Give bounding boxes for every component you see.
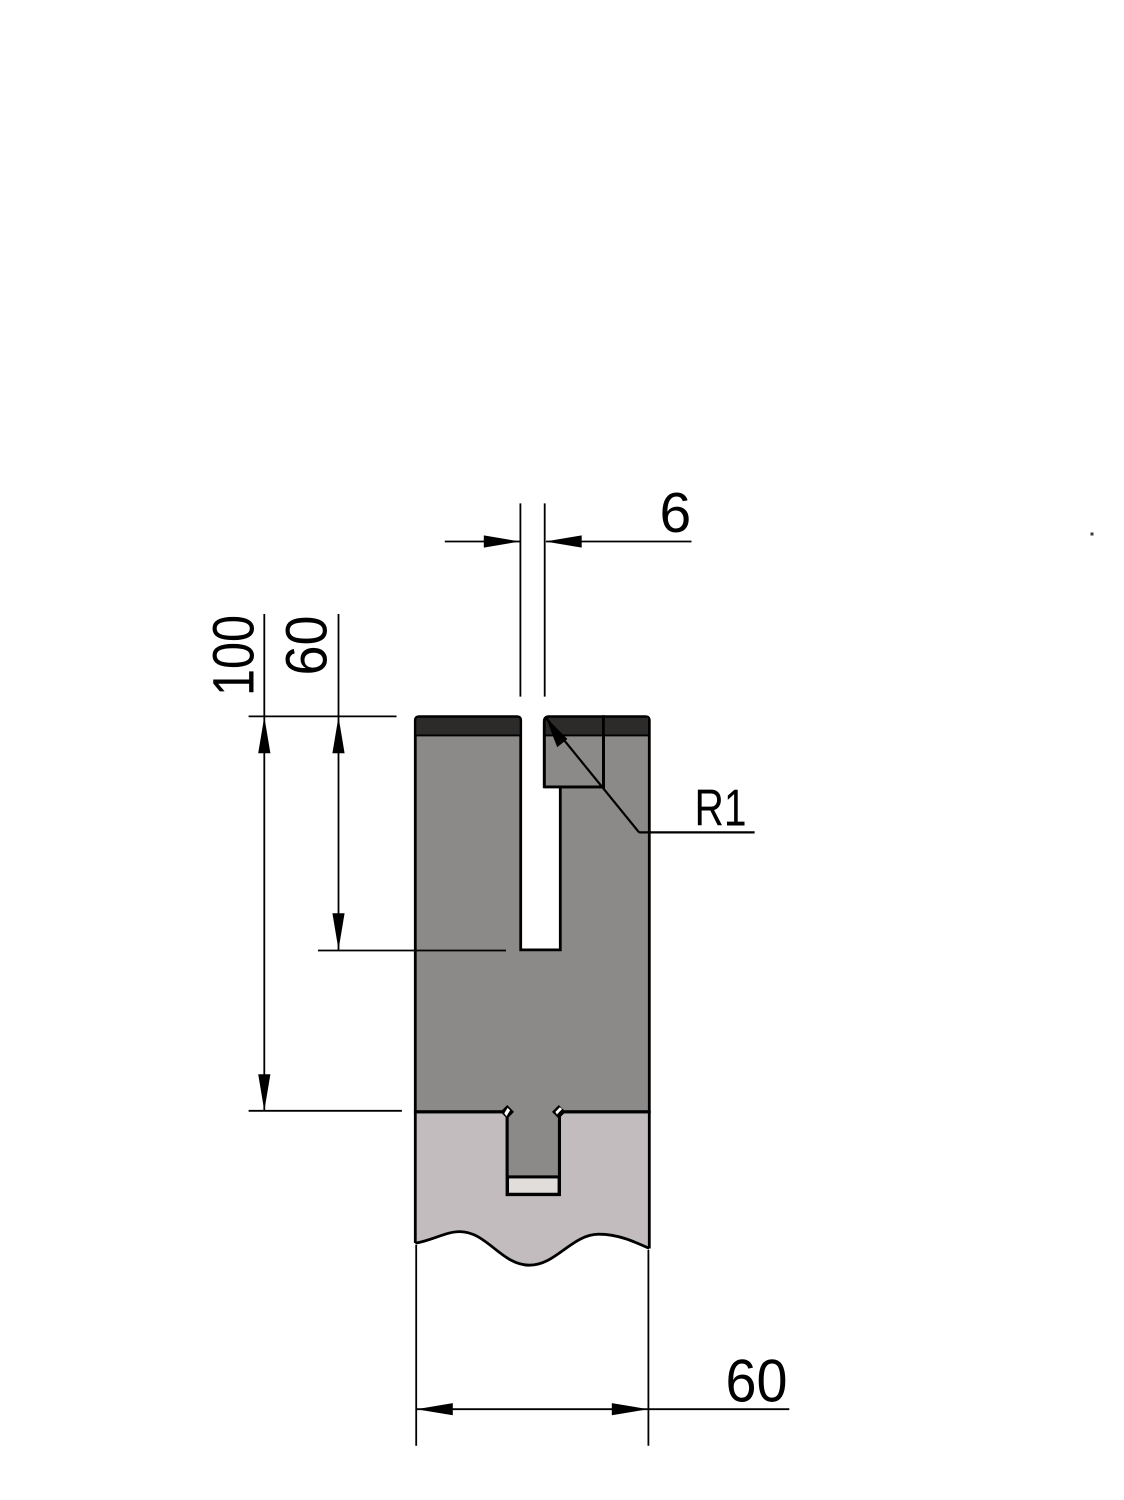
svg-text:60: 60 <box>726 1348 788 1415</box>
svg-text:60: 60 <box>275 616 340 676</box>
svg-text:100: 100 <box>202 615 267 696</box>
svg-text:6: 6 <box>660 481 692 545</box>
svg-text:R1: R1 <box>695 780 747 838</box>
